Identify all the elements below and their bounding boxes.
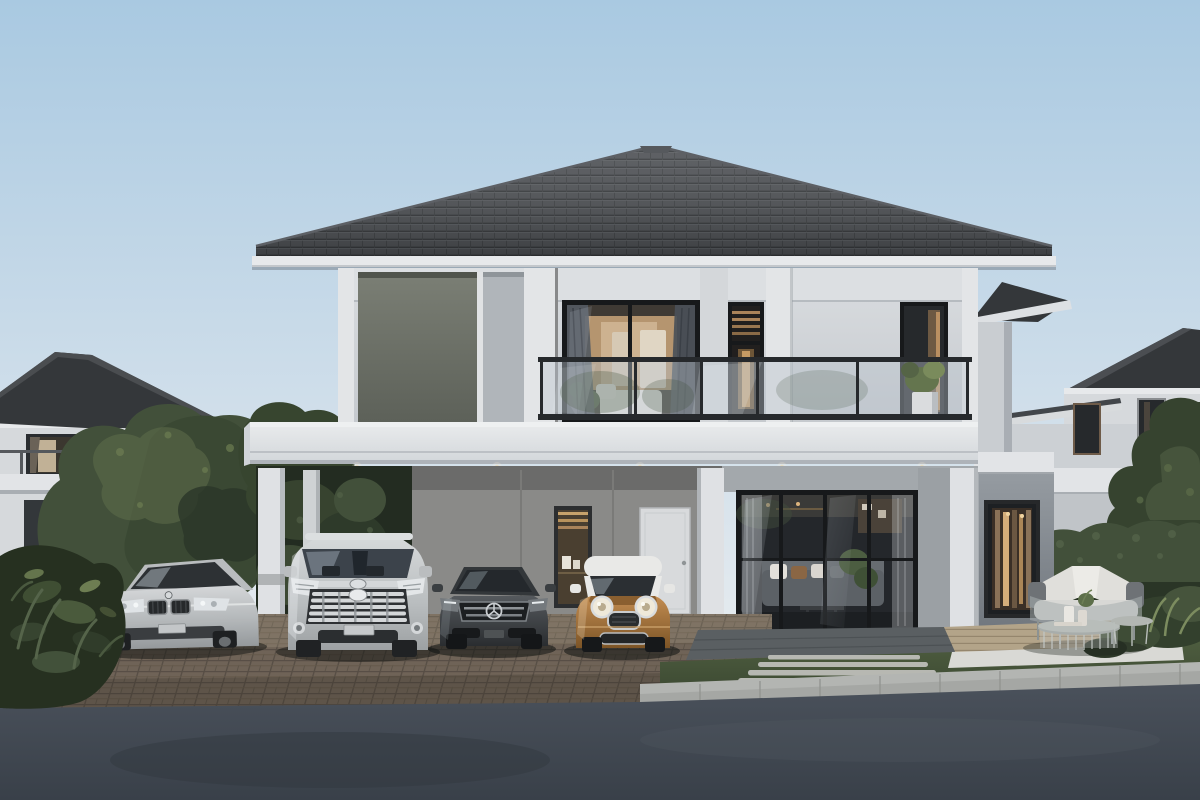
rendering-viewport: Photorealistic dusk rendering of a moder…: [0, 0, 1200, 800]
balcony-railing: [538, 357, 972, 420]
scene-canvas: Photorealistic dusk rendering of a moder…: [0, 0, 1200, 800]
living-room-glass-doors: [736, 490, 918, 634]
silver-minivan: [276, 533, 440, 662]
feature-panel-dark: [358, 272, 524, 422]
